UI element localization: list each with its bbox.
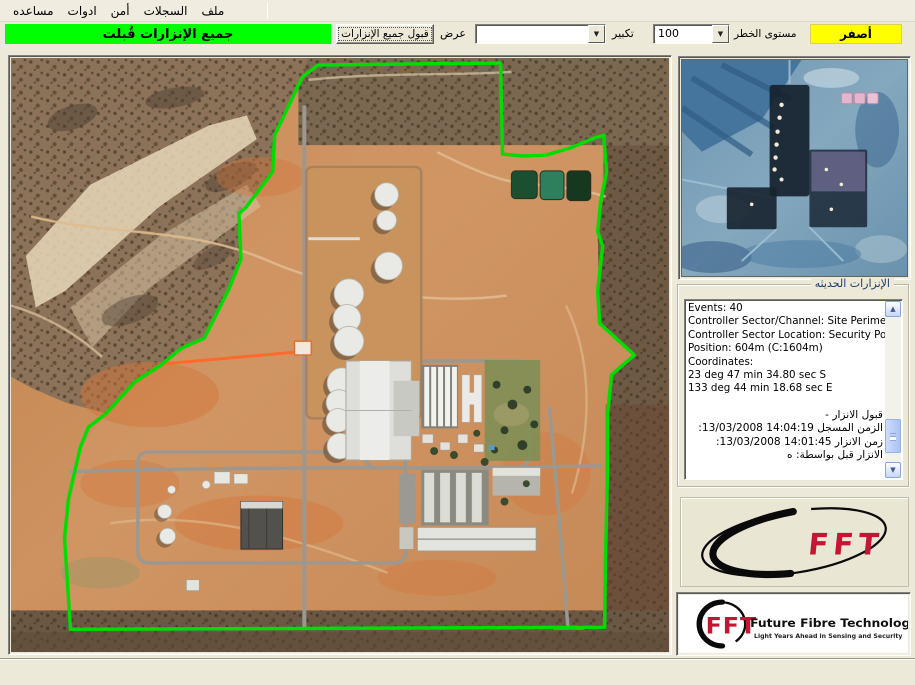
fft-tagline: Light Years Ahead in Sensing and Securit… bbox=[754, 633, 902, 640]
scroll-up-button[interactable]: ▲ bbox=[885, 301, 901, 317]
event-line: Position: 604m (C:1604m) bbox=[688, 342, 883, 355]
event-line: زمن الانزار 14:01:45 13/03/2008: bbox=[688, 436, 883, 449]
event-line-blank bbox=[688, 396, 883, 409]
site-map-panel bbox=[8, 55, 672, 655]
event-line: 133 deg 44 min 18.68 sec E bbox=[688, 382, 883, 395]
view-label: عرض bbox=[440, 27, 466, 40]
event-line: Controller Sector/Channel: Site Perimete… bbox=[688, 315, 883, 328]
status-bar bbox=[0, 658, 915, 685]
zoom-combobox-arrow-icon[interactable]: ▼ bbox=[712, 25, 729, 43]
overview-ponds bbox=[841, 93, 878, 104]
fft-security-app: { "menu": { "items": [ { "id": "help", "… bbox=[0, 0, 915, 685]
site-map-image[interactable] bbox=[11, 58, 669, 652]
accept-all-alarms-button[interactable]: قبول جميع الإنزارات bbox=[336, 24, 434, 44]
alarm-status-banner: جميع الإنزارات قُبلت bbox=[5, 24, 331, 44]
zoom-combobox-value: 100 bbox=[654, 25, 712, 43]
event-line: قبول الانزار - bbox=[688, 409, 883, 422]
scroll-down-button[interactable]: ▼ bbox=[885, 462, 901, 478]
recent-alarms-title: الإنزارات الحديثه bbox=[811, 277, 894, 290]
zoom-label: تكبير bbox=[612, 27, 634, 40]
fft-company-logo: FFT Future Fibre Technologies Light Year… bbox=[679, 595, 908, 653]
event-line: الانزار قبل بواسطة: ه bbox=[688, 449, 883, 462]
risk-level-label: مستوى الخطر bbox=[734, 28, 796, 40]
overview-map-panel bbox=[678, 56, 911, 280]
overview-map-image[interactable] bbox=[681, 59, 908, 277]
menu-item-logs[interactable]: السجلات bbox=[137, 2, 195, 20]
fft-company-logo-panel: FFT Future Fibre Technologies Light Year… bbox=[676, 592, 911, 656]
zoom-combobox[interactable]: 100 ▼ bbox=[653, 24, 730, 44]
toolbar: جميع الإنزارات قُبلت قبول جميع الإنزارات… bbox=[0, 23, 915, 47]
menu-item-security[interactable]: أمن bbox=[104, 2, 137, 20]
event-line: الزمن المسجل 14:04:19 13/03/2008: bbox=[688, 422, 883, 435]
menu-item-file[interactable]: ملف bbox=[194, 2, 231, 20]
fft-emblem-logo: FFT bbox=[681, 498, 908, 586]
recent-alarms-groupbox: الإنزارات الحديثه Events: 40 Controller … bbox=[677, 284, 909, 487]
event-line: 23 deg 47 min 34.80 sec S bbox=[688, 369, 883, 382]
alarm-details-scrollbar[interactable]: ▲ ▼ bbox=[885, 301, 901, 478]
accept-all-alarms-label: قبول جميع الإنزارات bbox=[339, 28, 431, 40]
scrollbar-thumb[interactable] bbox=[885, 419, 901, 453]
fft-emblem-panel: FFT bbox=[680, 497, 909, 587]
view-combobox[interactable]: ▼ bbox=[475, 24, 606, 44]
menu-item-tools[interactable]: ادوات bbox=[61, 2, 104, 20]
alarm-details-textbox[interactable]: Events: 40 Controller Sector/Channel: Si… bbox=[684, 299, 903, 480]
event-line: Coordinates: bbox=[688, 356, 883, 369]
fft-company-name: Future Fibre Technologies bbox=[750, 616, 908, 630]
risk-level-badge: أصفر bbox=[810, 24, 902, 44]
menu-bar: مساعده ادوات أمن السجلات ملف bbox=[0, 0, 915, 22]
view-combobox-arrow-icon[interactable]: ▼ bbox=[588, 25, 605, 43]
map-ponds bbox=[511, 171, 590, 201]
menu-item-help[interactable]: مساعده bbox=[6, 2, 61, 20]
alarm-details-text: Events: 40 Controller Sector/Channel: Si… bbox=[688, 302, 883, 477]
menu-divider bbox=[267, 3, 268, 19]
fft-emblem-text: FFT bbox=[807, 527, 886, 561]
event-line: Events: 40 bbox=[688, 302, 883, 315]
event-line: Controller Sector Location: Security Pos… bbox=[688, 329, 883, 342]
view-combobox-value bbox=[476, 25, 588, 43]
